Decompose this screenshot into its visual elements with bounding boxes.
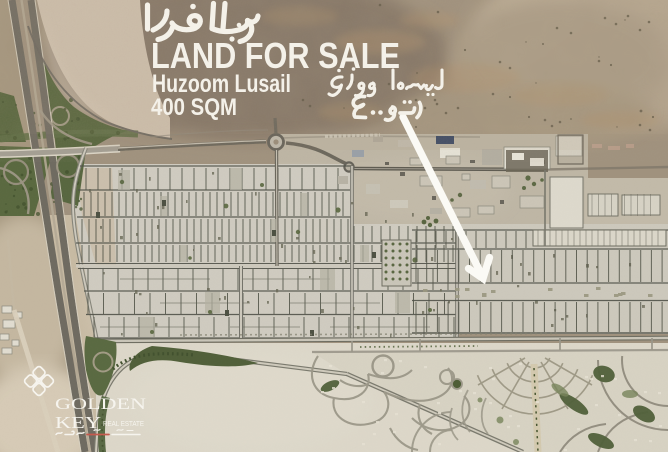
svg-text:400 SQM: 400 SQM bbox=[151, 94, 237, 121]
svg-text:GOLDEN: GOLDEN bbox=[55, 396, 146, 413]
svg-text:KEY: KEY bbox=[55, 413, 101, 432]
svg-text:REAL ESTATE: REAL ESTATE bbox=[103, 421, 144, 428]
